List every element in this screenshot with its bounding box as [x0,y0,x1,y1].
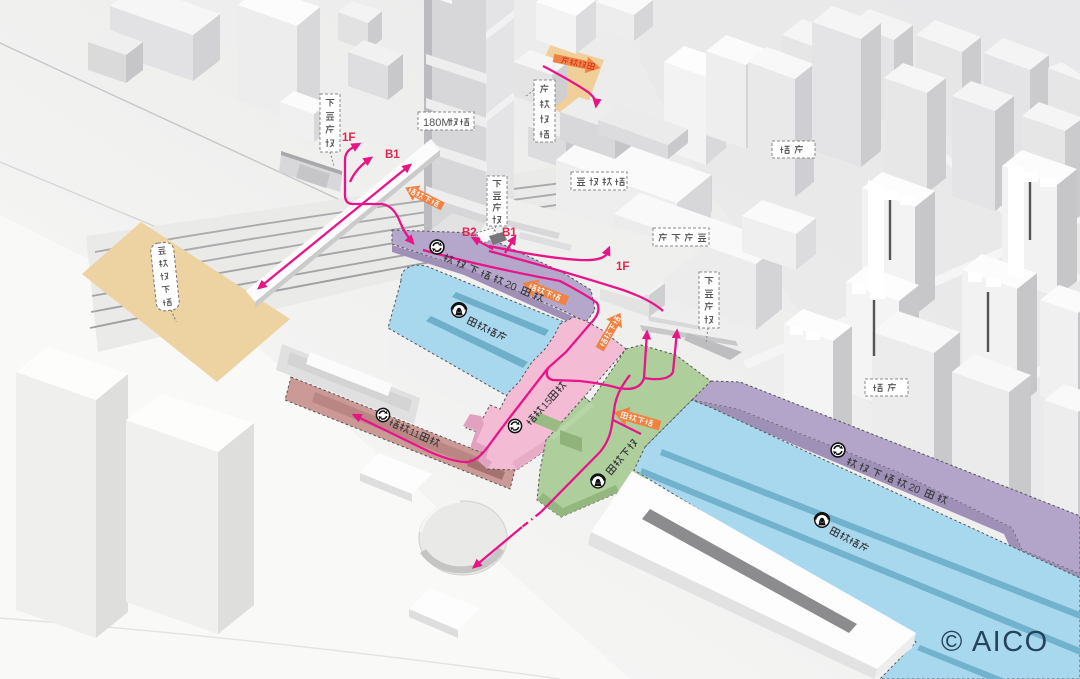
svg-text:1F: 1F [616,261,629,273]
svg-text:1F: 1F [342,132,355,144]
svg-text:180M: 180M [423,117,451,129]
svg-text:B2: B2 [462,227,477,239]
svg-text:B1: B1 [385,149,400,161]
svg-text:B1: B1 [502,227,517,239]
svg-text:© AICO: © AICO [941,626,1049,658]
